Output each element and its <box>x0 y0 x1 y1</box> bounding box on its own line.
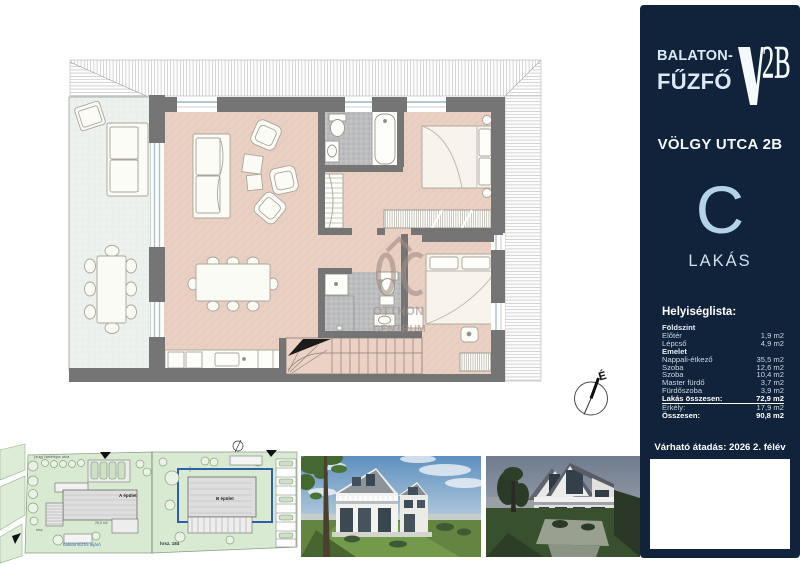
svg-text:hrsz: hrsz <box>36 528 43 532</box>
svg-text:hrsz. 184: hrsz. 184 <box>160 541 180 546</box>
svg-text:25,0 m2: 25,0 m2 <box>95 521 108 525</box>
svg-text:OTTHON: OTTHON <box>373 306 424 318</box>
svg-text:CENTRUM: CENTRUM <box>373 324 426 335</box>
svg-text:A épület: A épület <box>119 493 137 498</box>
svg-text:balatonfűzfői lejáró: balatonfűzfői lejáró <box>63 542 101 547</box>
svg-text:B épület: B épület <box>216 496 234 501</box>
svg-text:2B: 2B <box>762 38 791 89</box>
svg-text:(zug) Nefelejcs utca: (zug) Nefelejcs utca <box>34 454 70 459</box>
